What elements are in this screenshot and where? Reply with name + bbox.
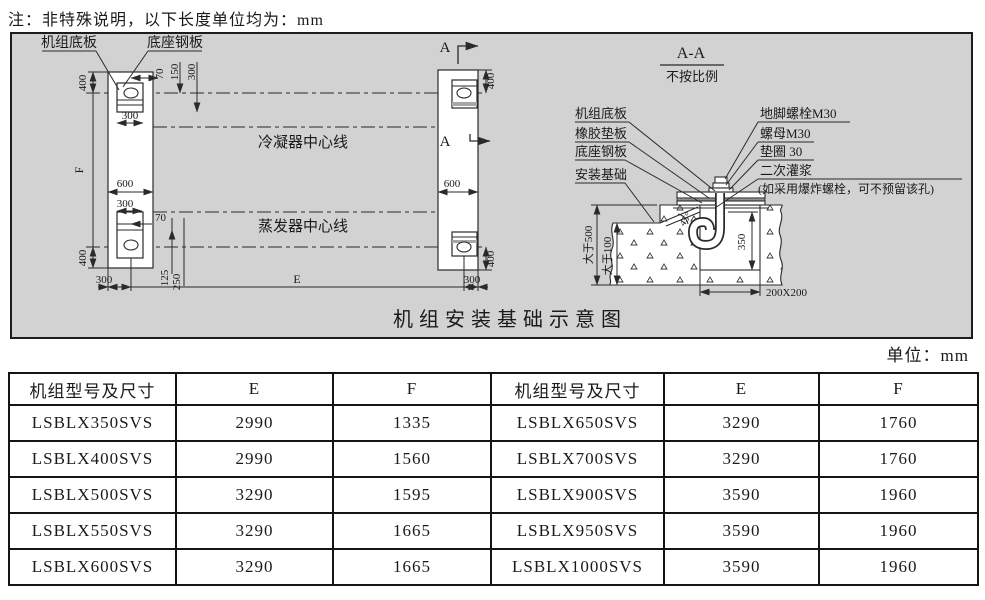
units-note: 注：非特殊说明，以下长度单位均为：mm [8, 6, 324, 30]
dimension-cell: 1960 [819, 549, 978, 585]
condenser-centerline-label: 冷凝器中心线 [258, 134, 348, 151]
dimension-cell: 3590 [664, 549, 819, 585]
dim-125: 125 [159, 269, 171, 286]
header-E-left: E [176, 373, 333, 405]
model-cell: LSBLX550SVS [9, 513, 176, 549]
foundation-diagram: 机组底板 底座钢板 冷凝器中心线 蒸发器中心线 400 F 400 70 150… [10, 32, 973, 339]
dimension-cell: 1335 [333, 405, 491, 441]
spec-table: 机组型号及尺寸 E F 机组型号及尺寸 E F LSBLX350SVS29901… [8, 372, 979, 586]
dimension-cell: 1665 [333, 549, 491, 585]
table-row: LSBLX350SVS29901335LSBLX650SVS32901760 [9, 405, 978, 441]
table-row: LSBLX550SVS32901665LSBLX950SVS35901960 [9, 513, 978, 549]
dimension-cell: 3290 [664, 441, 819, 477]
label-unit-base-plate: 机组底板 [575, 106, 627, 121]
dimension-cell: 1560 [333, 441, 491, 477]
dim-300-upper-square: 300 [122, 110, 139, 122]
dimension-cell: 2990 [176, 405, 333, 441]
model-cell: LSBLX700SVS [491, 441, 664, 477]
dimension-cell: 1760 [819, 441, 978, 477]
section-view: A-A 不按比例 45° 机组底板 [575, 45, 962, 299]
label-base-steel-plate: 底座钢板 [575, 144, 627, 159]
model-cell: LSBLX400SVS [9, 441, 176, 477]
dimension-cell: 1960 [819, 513, 978, 549]
section-marker-A-mid: A [440, 134, 451, 150]
table-unit-note: 单位：mm [887, 341, 969, 366]
base-steel-plate-label: 底座钢板 [147, 35, 203, 51]
label-foundation: 安装基础 [575, 167, 627, 182]
diagram-canvas: 机组底板 底座钢板 冷凝器中心线 蒸发器中心线 400 F 400 70 150… [12, 34, 967, 333]
label-grout-note: (如采用爆炸螺栓，可不预留该孔) [758, 181, 934, 196]
dim-600-left: 600 [117, 178, 134, 190]
model-cell: LSBLX950SVS [491, 513, 664, 549]
header-F-left: F [333, 373, 491, 405]
evaporator-centerline-label: 蒸发器中心线 [258, 218, 348, 235]
table-header-row: 机组型号及尺寸 E F 机组型号及尺寸 E F [9, 373, 978, 405]
section-scale-note: 不按比例 [666, 69, 718, 84]
dimension-cell: 3590 [664, 513, 819, 549]
dim-300-bottom-right: 300 [464, 274, 481, 286]
dimension-cell: 3290 [176, 477, 333, 513]
plan-dimension-E-row: 300 E 300 [96, 256, 488, 291]
label-grout: 二次灌浆 [760, 163, 812, 178]
model-cell: LSBLX500SVS [9, 477, 176, 513]
dim-300-bottom-left: 300 [96, 274, 113, 286]
section-title: A-A [677, 45, 706, 62]
dim-400-bottom-right: 400 [485, 250, 497, 267]
header-F-right: F [819, 373, 978, 405]
table-row: LSBLX600SVS32901665LSBLX1000SVS35901960 [9, 549, 978, 585]
dim-70-bottom: 70 [155, 212, 167, 224]
section-marker-A-top: A [440, 40, 451, 56]
model-cell: LSBLX600SVS [9, 549, 176, 585]
dimension-cell: 1960 [819, 477, 978, 513]
plan-view: 机组底板 底座钢板 冷凝器中心线 蒸发器中心线 400 F 400 70 150… [41, 35, 497, 291]
label-nut: 螺母M30 [760, 126, 811, 141]
dimension-cell: 3290 [176, 513, 333, 549]
left-foundation-plate [108, 72, 153, 268]
header-model-right: 机组型号及尺寸 [491, 373, 664, 405]
label-anchor-bolt: 地脚螺栓M30 [760, 106, 837, 121]
model-cell: LSBLX350SVS [9, 405, 176, 441]
dimension-cell: 1595 [333, 477, 491, 513]
diagram-caption: 机组安装基础示意图 [393, 308, 627, 331]
dim-F: F [72, 166, 86, 173]
header-model-left: 机组型号及尺寸 [9, 373, 176, 405]
table-row: LSBLX400SVS29901560LSBLX700SVS32901760 [9, 441, 978, 477]
dim-gt500: 大于500 [581, 225, 595, 264]
unit-base-plate-label: 机组底板 [41, 35, 97, 51]
dim-350: 350 [736, 233, 748, 250]
dim-300-top: 300 [186, 63, 198, 80]
dim-600-right: 600 [444, 178, 461, 190]
dim-pocket-200x200: 200X200 [766, 287, 807, 299]
dim-400-bottom-left: 400 [77, 249, 89, 266]
dimension-cell: 1760 [819, 405, 978, 441]
model-cell: LSBLX900SVS [491, 477, 664, 513]
dim-70-top: 70 [154, 68, 166, 80]
dim-E: E [293, 272, 300, 286]
anchor-pocket [700, 205, 760, 270]
dimension-cell: 2990 [176, 441, 333, 477]
dim-400-top-left: 400 [77, 74, 89, 91]
dim-150-top: 150 [169, 63, 181, 80]
spec-table-body: LSBLX350SVS29901335LSBLX650SVS32901760LS… [9, 405, 978, 585]
model-cell: LSBLX1000SVS [491, 549, 664, 585]
dimension-cell: 3290 [664, 405, 819, 441]
right-foundation-plate [438, 70, 478, 270]
dim-400-top-right: 400 [485, 72, 497, 89]
header-E-right: E [664, 373, 819, 405]
dim-gt100: 大于100 [600, 236, 614, 275]
table-row: LSBLX500SVS32901595LSBLX900SVS35901960 [9, 477, 978, 513]
dim-300-lower-square: 300 [117, 198, 134, 210]
label-rubber-pad: 橡胶垫板 [575, 126, 627, 141]
dimension-cell: 3290 [176, 549, 333, 585]
dimension-cell: 1665 [333, 513, 491, 549]
model-cell: LSBLX650SVS [491, 405, 664, 441]
dim-250: 250 [171, 273, 183, 290]
dimension-cell: 3590 [664, 477, 819, 513]
label-washer: 垫圈 30 [760, 144, 802, 159]
